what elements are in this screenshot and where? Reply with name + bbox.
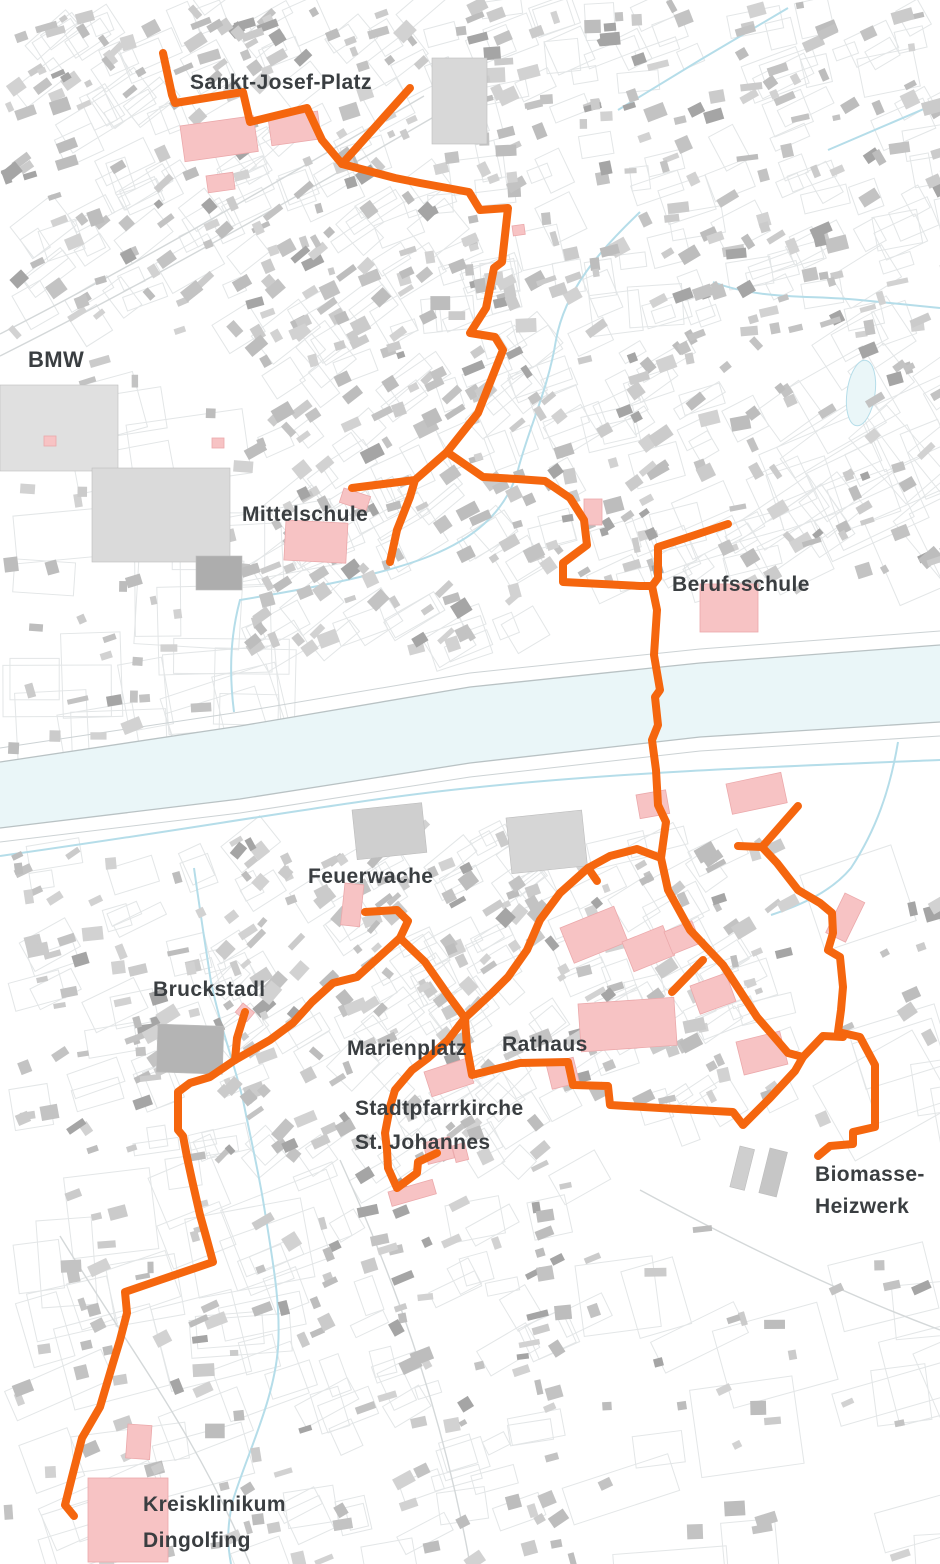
building: [907, 901, 918, 916]
building: [517, 64, 541, 81]
building: [746, 437, 759, 452]
building: [764, 1416, 781, 1425]
building: [532, 122, 548, 140]
building: [91, 1212, 102, 1221]
parcel-outline: [544, 38, 581, 73]
building: [740, 82, 762, 92]
building: [76, 614, 87, 625]
building: [251, 1212, 274, 1231]
building: [421, 604, 435, 616]
map-label-feuerwache: Feuerwache: [308, 865, 433, 888]
building: [544, 935, 559, 951]
building: [876, 291, 887, 306]
building: [512, 1364, 530, 1377]
building: [444, 404, 465, 421]
parcel-outline: [651, 1302, 749, 1373]
parcel-outline: [180, 853, 218, 892]
building: [24, 683, 36, 699]
parcel-outline: [527, 163, 552, 183]
building: [271, 1118, 294, 1142]
building: [550, 1539, 562, 1549]
building: [486, 6, 506, 22]
building: [192, 1363, 214, 1377]
building: [904, 80, 917, 90]
building: [829, 164, 845, 176]
parcel-outline: [87, 84, 125, 126]
building: [506, 346, 524, 360]
parcel-outline: [15, 1292, 74, 1368]
building: [788, 1350, 797, 1361]
parcel-outline: [931, 1068, 940, 1154]
building: [818, 68, 829, 82]
building: [246, 1106, 264, 1121]
building: [487, 173, 500, 184]
building: [53, 1002, 66, 1009]
stream-east-stream: [771, 742, 898, 915]
building: [273, 576, 293, 593]
parcel-outline: [133, 1137, 180, 1155]
building: [105, 857, 117, 870]
building: [154, 145, 171, 163]
parcel-outline: [282, 0, 330, 46]
building: [135, 1047, 146, 1057]
building: [724, 1500, 745, 1516]
building: [698, 410, 721, 428]
parcel-outline: [123, 283, 168, 311]
building: [639, 508, 650, 518]
building: [230, 960, 242, 976]
building: [300, 1066, 317, 1083]
building: [128, 963, 148, 977]
parcel-outline: [651, 305, 675, 324]
building: [381, 375, 399, 393]
building: [508, 875, 526, 892]
parcel-outline: [147, 1125, 168, 1148]
parcel-outline: [429, 1271, 482, 1308]
large-building: [432, 58, 487, 144]
building: [855, 500, 872, 515]
building: [443, 1417, 461, 1433]
building: [693, 1225, 713, 1233]
building: [438, 857, 455, 872]
building: [541, 212, 551, 225]
building: [459, 976, 479, 996]
building: [387, 130, 395, 138]
building: [718, 539, 735, 556]
building: [309, 7, 319, 18]
building: [150, 596, 158, 605]
building: [260, 561, 282, 574]
parcel-outline: [833, 42, 859, 61]
building: [548, 1509, 569, 1529]
building: [686, 392, 707, 411]
building: [132, 1094, 153, 1110]
building: [257, 917, 267, 928]
parcel-outline: [29, 870, 54, 890]
building: [535, 1248, 546, 1258]
building: [323, 226, 335, 238]
building: [584, 20, 601, 34]
river-isar: [0, 645, 940, 828]
building: [291, 633, 305, 647]
building: [889, 141, 911, 155]
building: [118, 215, 135, 232]
building: [522, 492, 536, 506]
building: [858, 341, 879, 359]
building: [711, 893, 727, 905]
building: [56, 137, 78, 154]
building: [100, 651, 113, 661]
building: [625, 474, 644, 492]
building: [274, 1467, 293, 1478]
building: [64, 1188, 82, 1201]
building: [557, 973, 566, 982]
building: [392, 1204, 410, 1219]
building: [80, 1340, 93, 1351]
building: [353, 944, 363, 954]
building: [107, 1204, 128, 1221]
large-building: [506, 810, 587, 874]
building: [391, 1270, 414, 1286]
building: [75, 212, 88, 226]
building: [126, 1144, 137, 1153]
parcel-outline: [582, 269, 622, 317]
map-label-rathaus: Rathaus: [502, 1033, 588, 1056]
building: [537, 1490, 556, 1508]
building: [260, 308, 276, 319]
building: [94, 275, 107, 285]
building: [111, 960, 126, 974]
building: [233, 169, 250, 181]
building: [730, 415, 752, 432]
building: [880, 948, 890, 958]
landmark-building: [726, 772, 787, 814]
building: [170, 1378, 185, 1395]
building: [729, 503, 746, 511]
parcel-outline: [613, 1546, 729, 1564]
building: [410, 1416, 427, 1429]
building: [88, 895, 103, 907]
building: [660, 160, 670, 173]
parcel-outline: [424, 21, 459, 47]
building: [458, 870, 479, 891]
building: [17, 1059, 32, 1075]
large-building: [196, 556, 242, 590]
building: [82, 926, 104, 942]
building: [433, 515, 453, 534]
map-label-text: Dingolfing: [143, 1529, 251, 1552]
building: [276, 238, 296, 257]
building: [476, 161, 491, 177]
building: [120, 716, 143, 735]
parcel-outline: [776, 173, 804, 198]
building: [649, 293, 668, 308]
building: [527, 1114, 544, 1132]
building: [288, 933, 305, 951]
building: [226, 320, 243, 338]
building: [76, 23, 90, 38]
parcel-outline: [801, 278, 844, 309]
building: [493, 30, 513, 46]
building: [84, 79, 93, 87]
building: [297, 1331, 311, 1347]
landmark-building: [126, 1424, 152, 1460]
landmark-building: [212, 438, 224, 448]
parcel-outline: [777, 87, 834, 127]
building: [603, 496, 625, 515]
parcel-outline: [759, 47, 818, 83]
building: [740, 326, 758, 337]
building: [341, 416, 362, 432]
map-label-text: Kreisklinikum: [143, 1493, 286, 1516]
building: [550, 11, 560, 25]
parcel-outline: [436, 1436, 490, 1480]
building: [635, 860, 648, 871]
parcel-outline: [354, 1276, 384, 1316]
building: [290, 1551, 306, 1564]
building: [125, 573, 143, 588]
building: [398, 284, 414, 297]
parcel-outline: [277, 170, 317, 211]
map-label-text: St. Johannes: [355, 1131, 491, 1154]
parcel-outline: [619, 252, 647, 270]
parcel-outline: [102, 904, 132, 932]
building: [775, 947, 793, 959]
heat-pipeline-sankt-josef-east: [342, 88, 410, 164]
building: [509, 417, 526, 432]
parcel-outline: [10, 195, 76, 258]
building: [810, 165, 821, 179]
large-building: [0, 385, 118, 471]
building: [527, 1503, 539, 1518]
building: [708, 89, 725, 104]
building: [545, 1384, 564, 1400]
building: [195, 907, 206, 919]
building: [329, 1073, 346, 1087]
city-map-viewport: Sankt-Josef-PlatzBMWMittelschuleBerufssc…: [0, 0, 940, 1564]
building: [505, 1494, 522, 1511]
building: [115, 943, 128, 960]
building: [439, 464, 461, 485]
building: [89, 355, 111, 368]
building: [894, 1419, 905, 1427]
map-label-bmw: BMW: [28, 347, 84, 372]
landmark-building: [341, 883, 364, 927]
building: [489, 553, 500, 563]
building: [687, 1524, 703, 1539]
building: [860, 517, 875, 526]
building: [360, 443, 385, 464]
building: [36, 976, 48, 984]
building: [639, 494, 654, 507]
building: [33, 77, 52, 95]
building: [448, 1196, 470, 1213]
building: [206, 408, 216, 418]
landmark-building: [206, 172, 235, 193]
building: [3, 556, 19, 572]
building: [361, 1257, 379, 1274]
building: [737, 280, 757, 298]
building: [417, 1293, 433, 1301]
parcel-outline: [871, 1364, 932, 1427]
parcel-outline: [502, 1145, 537, 1180]
building: [45, 1466, 56, 1478]
building: [883, 1280, 901, 1292]
building: [355, 1401, 376, 1415]
building: [726, 1314, 740, 1324]
building: [342, 1061, 353, 1075]
parcel-outline: [535, 148, 575, 193]
building: [90, 732, 106, 739]
building: [270, 328, 283, 342]
building: [563, 246, 580, 261]
building: [93, 308, 105, 319]
building: [543, 1402, 556, 1413]
building: [860, 25, 878, 41]
building: [4, 1505, 14, 1520]
building: [763, 75, 779, 90]
building: [75, 10, 95, 25]
building: [886, 371, 903, 386]
building: [534, 1379, 543, 1395]
building: [20, 484, 35, 495]
parcel-outline: [179, 228, 204, 252]
building: [391, 401, 407, 417]
building: [796, 2, 804, 10]
building: [540, 94, 553, 104]
parcel-outline: [690, 1376, 805, 1478]
parcel-outline: [70, 304, 112, 346]
building: [64, 233, 84, 251]
building: [392, 1470, 416, 1490]
building: [858, 187, 880, 207]
map-label-sankt-josef-platz: Sankt-Josef-Platz: [190, 71, 372, 94]
building: [755, 987, 764, 994]
building: [531, 1160, 549, 1172]
parcel-outline: [571, 66, 598, 85]
building: [791, 113, 810, 123]
building: [677, 1401, 687, 1411]
map-label-marienplatz: Marienplatz: [347, 1037, 467, 1060]
building: [602, 884, 611, 894]
building: [854, 562, 872, 580]
building: [602, 1402, 612, 1411]
building: [8, 742, 19, 754]
building: [716, 189, 739, 208]
building: [751, 947, 763, 957]
city-map: Sankt-Josef-PlatzBMWMittelschuleBerufssc…: [0, 0, 940, 1564]
building: [77, 1050, 89, 1057]
building: [666, 0, 678, 13]
building: [421, 1237, 432, 1248]
parcel-outline: [227, 234, 270, 274]
parcel-outline: [874, 214, 928, 260]
building: [132, 657, 143, 666]
parcel-outline: [911, 1055, 940, 1116]
building: [577, 355, 592, 365]
building: [578, 566, 591, 577]
building: [624, 168, 636, 174]
building: [430, 296, 450, 310]
building: [147, 263, 161, 278]
map-label-berufsschule: Berufsschule: [672, 573, 810, 596]
building: [539, 556, 558, 575]
building: [497, 126, 516, 139]
building: [908, 43, 915, 52]
building: [874, 1260, 884, 1270]
building: [512, 520, 523, 529]
building: [65, 847, 80, 860]
building: [748, 314, 759, 324]
parcel-outline: [71, 1077, 124, 1112]
building: [344, 595, 356, 604]
parcel-outline: [499, 1285, 543, 1332]
building: [643, 102, 667, 122]
building: [314, 1554, 334, 1564]
building: [608, 457, 619, 468]
building: [219, 1482, 230, 1492]
building: [294, 1110, 318, 1128]
building: [686, 172, 700, 187]
heat-pipeline-mittelschule-south: [390, 480, 415, 562]
parcel-outline: [853, 218, 886, 252]
building: [314, 203, 323, 214]
building: [491, 1236, 502, 1250]
large-building: [156, 1024, 224, 1074]
building: [224, 909, 239, 924]
building: [474, 1361, 485, 1371]
building: [394, 1303, 408, 1312]
building: [342, 385, 363, 405]
map-label-text: BMW: [28, 347, 84, 372]
building: [667, 201, 689, 214]
parcel-outline: [178, 844, 214, 886]
building: [703, 108, 724, 124]
building: [467, 32, 489, 45]
building: [310, 1296, 321, 1309]
building: [592, 268, 600, 277]
building: [281, 422, 296, 438]
map-label-bruckstadl: Bruckstadl: [153, 978, 266, 1001]
building: [267, 1521, 281, 1533]
building: [519, 1339, 541, 1348]
parcel-outline: [765, 17, 797, 50]
building: [232, 274, 252, 292]
large-building: [92, 468, 230, 562]
building: [367, 26, 389, 40]
building: [61, 1260, 82, 1273]
parcel-outline: [874, 1486, 940, 1553]
building: [871, 100, 884, 116]
building: [459, 1419, 468, 1427]
building: [230, 1350, 239, 1356]
building: [374, 9, 388, 19]
parcel-outline: [913, 1324, 940, 1422]
building: [12, 1379, 34, 1397]
building: [532, 1324, 551, 1336]
building: [204, 1311, 228, 1329]
building: [470, 345, 485, 359]
building: [29, 623, 43, 631]
building: [468, 215, 479, 224]
building: [530, 1140, 551, 1160]
building: [5, 101, 14, 112]
parcel-outline: [578, 131, 613, 158]
building: [626, 88, 639, 103]
building: [819, 271, 829, 280]
building: [400, 129, 410, 141]
building: [462, 360, 485, 376]
